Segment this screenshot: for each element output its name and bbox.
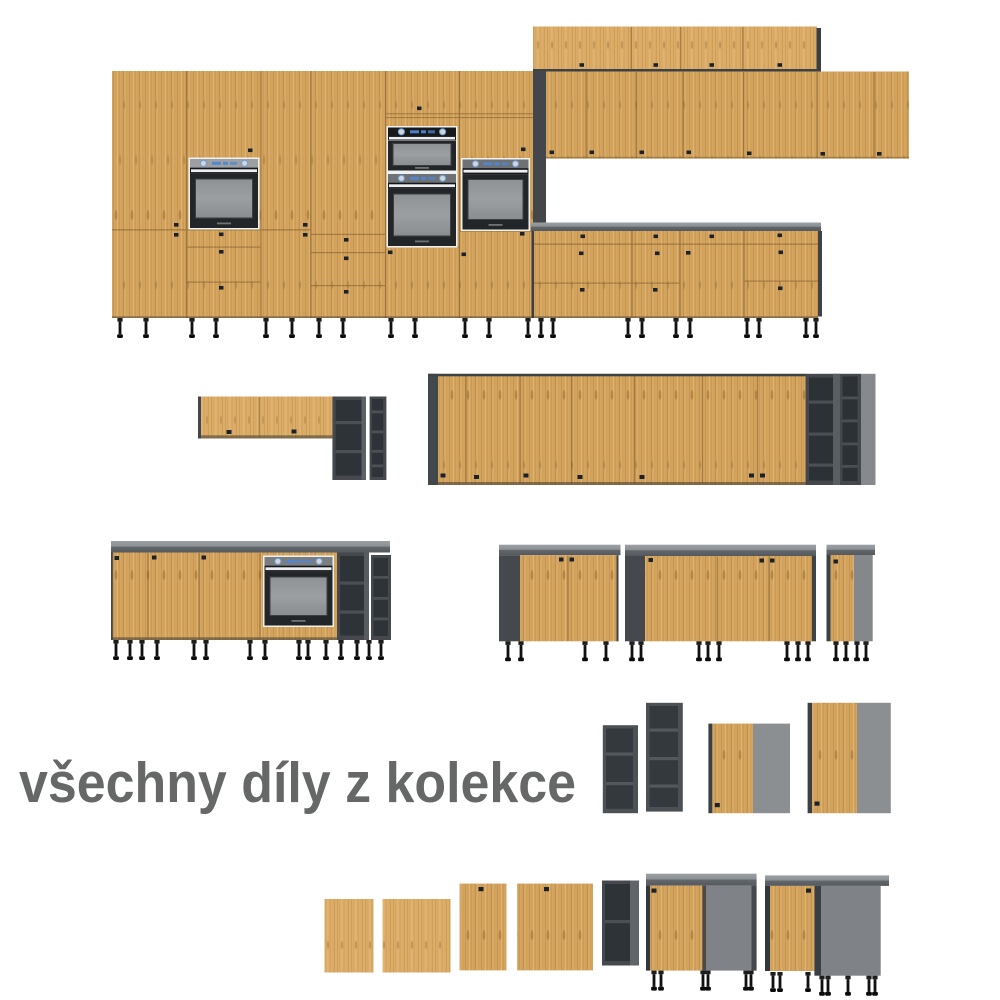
- svg-text:všechny díly z kolekce: všechny díly z kolekce: [19, 751, 576, 815]
